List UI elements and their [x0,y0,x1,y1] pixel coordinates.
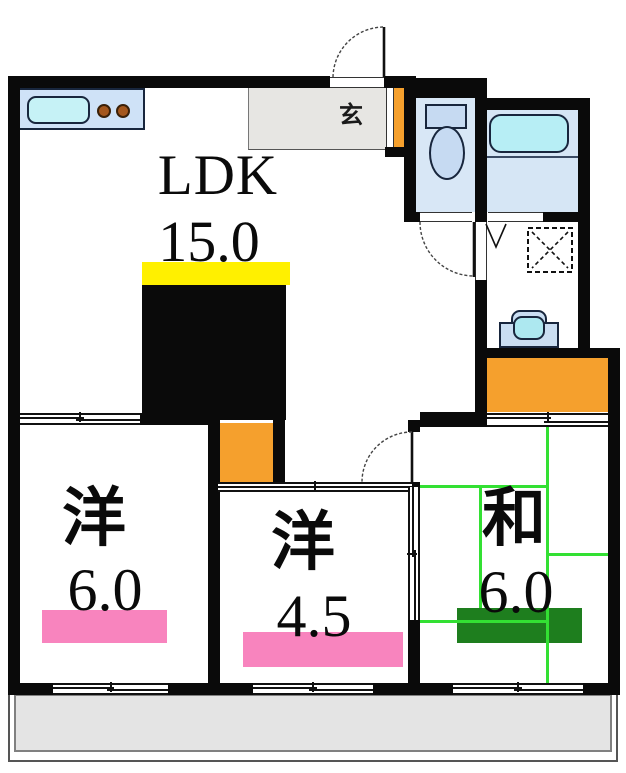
wall [578,98,590,358]
bath-door-opening [488,212,543,222]
bath-folding-door [486,224,506,247]
sliding-door-west2-japanese [408,487,420,620]
sliding-door-ldk-west1 [20,413,140,425]
wall [168,683,253,695]
washing-machine-cross [532,232,568,268]
washing-machine-area [528,228,572,272]
ldk-label: LDK [133,147,303,204]
ldk-size: 15.0 [129,213,289,271]
west2-label: 洋 [257,511,349,575]
west1-label: 洋 [48,487,140,551]
wall [608,355,620,695]
sliding-door-hall-west2 [218,482,412,492]
floorplan: LDK 15.0 洋 6.0 洋 4.5 和 6.0 玄 [0,0,626,773]
shoe-cabinet-door-lines [386,88,394,147]
wall [8,683,53,695]
wall [543,212,590,222]
washroom-opening [475,222,487,280]
wall [8,76,20,695]
tatami-line [546,427,549,683]
tatami-line [547,553,608,556]
storage-black-block [142,285,286,420]
wall [475,98,487,222]
window [453,683,583,695]
wall [583,683,618,695]
wall [208,413,220,695]
kitchen-sink [27,96,90,124]
balcony [14,694,612,752]
sliding-door-oshiire [487,413,608,427]
toilet-door-opening [420,212,472,222]
window [53,683,168,695]
genkan-label: 玄 [336,104,366,128]
west1-size: 6.0 [55,560,155,620]
entrance-door-arc [333,27,384,77]
stove-burner [97,104,111,118]
wall [404,212,420,222]
window [253,683,373,695]
washbasin-bowl [513,316,545,340]
japanese-room-door-arc [362,432,412,482]
oshiire-closet [487,358,608,412]
west2-size: 4.5 [264,586,364,646]
closet-west2 [220,423,273,482]
wall [420,412,487,427]
wall [404,78,487,98]
genkan-area [248,88,387,150]
washing-machine-cross [532,232,568,268]
japanese-label: 和 [468,487,560,551]
wall [475,348,620,358]
toilet-door-arc [420,222,474,276]
wall [140,413,210,425]
wall [385,147,416,157]
wall [8,76,330,88]
wall [487,98,590,110]
bath-divider-line [487,156,578,158]
toilet-bowl [429,126,465,180]
stove-burner [116,104,130,118]
bathtub [489,114,569,153]
wall [408,420,420,432]
shoe-cabinet [394,88,404,147]
wall [373,683,453,695]
entrance-opening [330,77,384,88]
japanese-size: 6.0 [466,562,566,622]
